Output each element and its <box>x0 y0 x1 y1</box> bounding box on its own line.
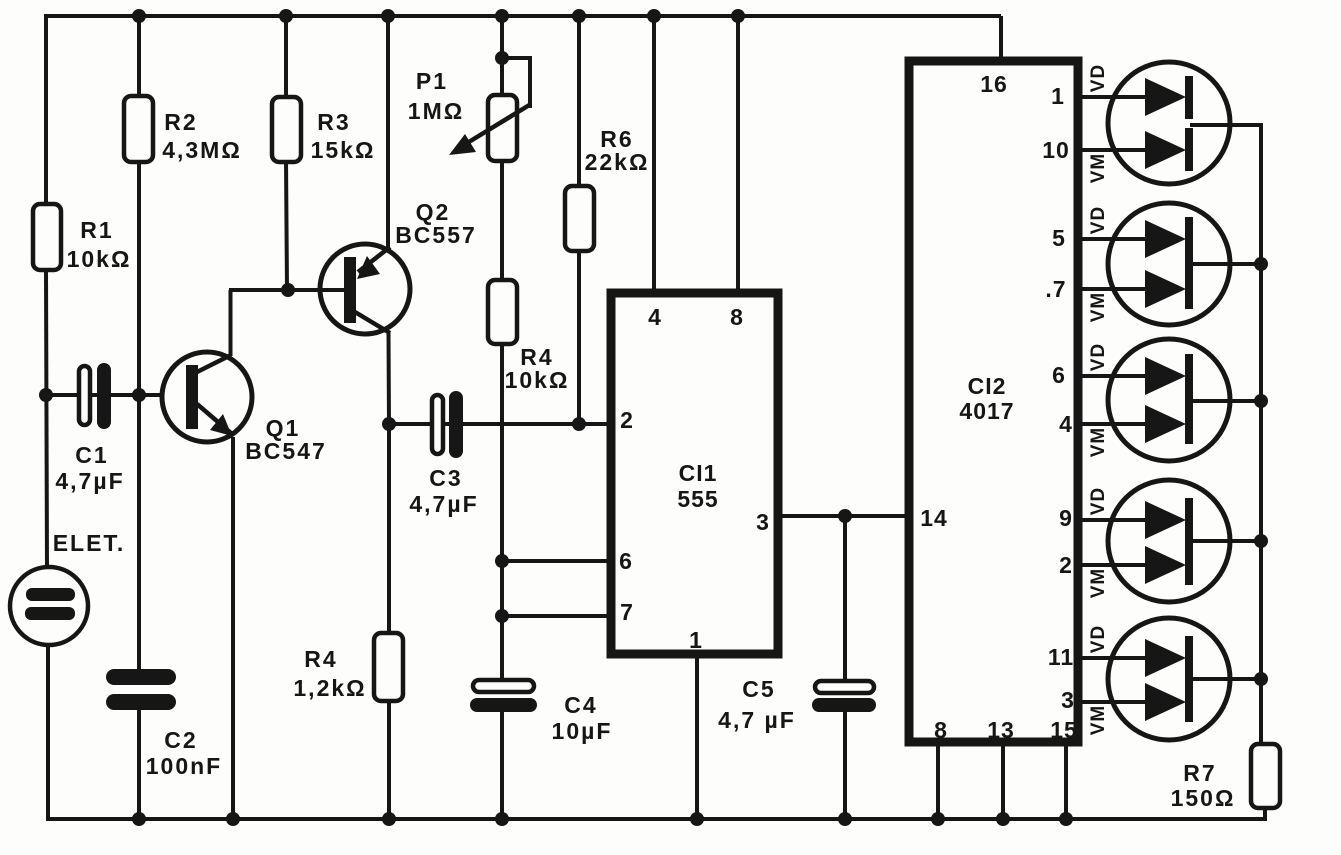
svg-text:VD: VD <box>1088 487 1109 515</box>
svg-text:C1: C1 <box>75 442 108 468</box>
svg-text:16: 16 <box>980 71 1008 97</box>
svg-text:4017: 4017 <box>959 398 1014 424</box>
svg-text:10: 10 <box>1042 137 1070 163</box>
svg-text:2: 2 <box>1059 552 1073 578</box>
svg-text:P1: P1 <box>416 68 448 94</box>
svg-text:R7: R7 <box>1183 760 1216 786</box>
svg-text:VD: VD <box>1088 625 1109 653</box>
svg-text:VD: VD <box>1088 343 1109 371</box>
svg-text:VM: VM <box>1088 427 1109 458</box>
svg-text:R1: R1 <box>80 217 113 243</box>
svg-text:3: 3 <box>756 509 770 535</box>
svg-text:11: 11 <box>1048 644 1074 670</box>
svg-text:VM: VM <box>1088 568 1109 599</box>
svg-text:C2: C2 <box>164 727 197 753</box>
svg-text:150Ω: 150Ω <box>1171 785 1236 811</box>
svg-text:C3: C3 <box>429 465 462 491</box>
svg-text:8: 8 <box>730 304 744 330</box>
svg-text:15: 15 <box>1050 717 1078 743</box>
svg-text:2: 2 <box>620 407 634 433</box>
svg-text:1: 1 <box>1051 83 1065 109</box>
svg-text:VD: VD <box>1088 64 1109 92</box>
svg-text:.7: .7 <box>1045 276 1066 302</box>
svg-text:VM: VM <box>1088 292 1109 323</box>
svg-text:100nF: 100nF <box>146 753 222 779</box>
svg-text:4,7 µF: 4,7 µF <box>718 707 796 733</box>
svg-text:1,2kΩ: 1,2kΩ <box>293 675 366 701</box>
svg-text:10µF: 10µF <box>552 718 613 744</box>
svg-text:4,7µF: 4,7µF <box>55 468 124 494</box>
svg-text:3: 3 <box>1061 687 1075 713</box>
svg-text:5: 5 <box>1052 225 1066 251</box>
svg-text:6: 6 <box>619 548 633 574</box>
svg-text:14: 14 <box>920 505 948 531</box>
svg-text:R3: R3 <box>317 109 350 135</box>
svg-text:4,7µF: 4,7µF <box>409 491 478 517</box>
svg-text:VM: VM <box>1088 153 1109 184</box>
svg-text:VD: VD <box>1088 206 1109 234</box>
svg-text:4: 4 <box>648 304 662 330</box>
svg-text:10kΩ: 10kΩ <box>67 246 132 272</box>
svg-text:R4: R4 <box>304 646 337 672</box>
svg-text:VM: VM <box>1088 705 1109 736</box>
svg-text:555: 555 <box>677 486 718 512</box>
svg-text:C4: C4 <box>564 692 597 718</box>
svg-text:6: 6 <box>1052 362 1066 388</box>
svg-text:BC547: BC547 <box>245 438 327 464</box>
svg-text:15kΩ: 15kΩ <box>311 137 376 163</box>
svg-text:CI1: CI1 <box>679 460 718 486</box>
svg-text:4,3MΩ: 4,3MΩ <box>162 137 242 163</box>
svg-text:1: 1 <box>689 627 703 653</box>
svg-text:ELET.: ELET. <box>53 530 126 556</box>
svg-text:9: 9 <box>1059 505 1073 531</box>
svg-text:4: 4 <box>1059 411 1073 437</box>
svg-text:C5: C5 <box>742 676 775 702</box>
svg-text:R2: R2 <box>164 109 197 135</box>
svg-text:BC557: BC557 <box>395 222 477 248</box>
svg-text:1MΩ: 1MΩ <box>408 98 464 124</box>
svg-text:7: 7 <box>620 599 634 625</box>
svg-text:13: 13 <box>987 717 1015 743</box>
svg-text:10kΩ: 10kΩ <box>505 367 570 393</box>
svg-text:8: 8 <box>934 717 948 743</box>
svg-text:22kΩ: 22kΩ <box>585 149 650 175</box>
svg-text:CI2: CI2 <box>968 373 1007 399</box>
